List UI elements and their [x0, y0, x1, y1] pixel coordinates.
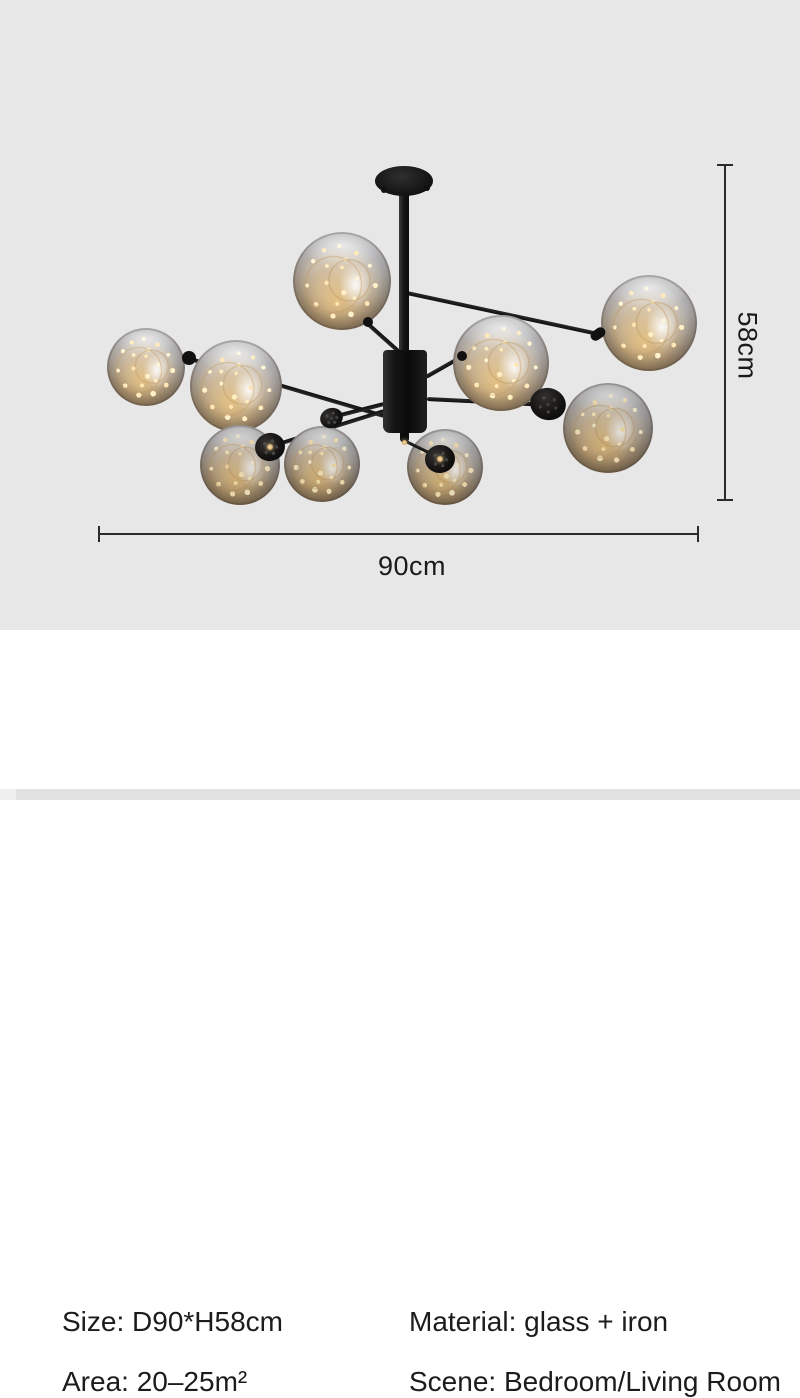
plate-screw [381, 187, 387, 193]
glass-globe [563, 383, 653, 473]
center-hub [383, 350, 427, 433]
arm-connector [457, 351, 467, 361]
spec-material: Material: glass + iron [409, 1306, 668, 1338]
height-dimension-line [724, 165, 726, 500]
glass-globe [284, 426, 360, 502]
bottom-strip [0, 789, 800, 800]
height-dimension-label: 58cm [732, 311, 763, 381]
spec-area: Area: 20–25m² [62, 1366, 247, 1398]
spec-size: Size: D90*H58cm [62, 1306, 283, 1338]
arm-connector [363, 317, 373, 327]
down-rod [399, 192, 409, 352]
arm-connector [182, 351, 196, 365]
width-dimension-cap-left [98, 526, 100, 542]
height-dimension-cap-top [717, 164, 733, 166]
glass-globe [601, 275, 697, 371]
spec-scene: Scene: Bedroom/Living Room [409, 1366, 781, 1398]
plate-screw [424, 185, 430, 191]
width-dimension-cap-right [697, 526, 699, 542]
glass-globe [107, 328, 185, 406]
glass-globe [293, 232, 391, 330]
hub-pin [402, 440, 407, 445]
specs-panel: Size: D90*H58cm Material: glass + iron A… [0, 630, 800, 789]
height-dimension-cap-bottom [717, 499, 733, 501]
product-photo: 58cm 90cm [0, 0, 800, 630]
width-dimension-label: 90cm [352, 551, 472, 582]
width-dimension-line [99, 533, 699, 535]
bottom-strip-light-segment [0, 789, 16, 800]
glass-globe [190, 340, 282, 432]
